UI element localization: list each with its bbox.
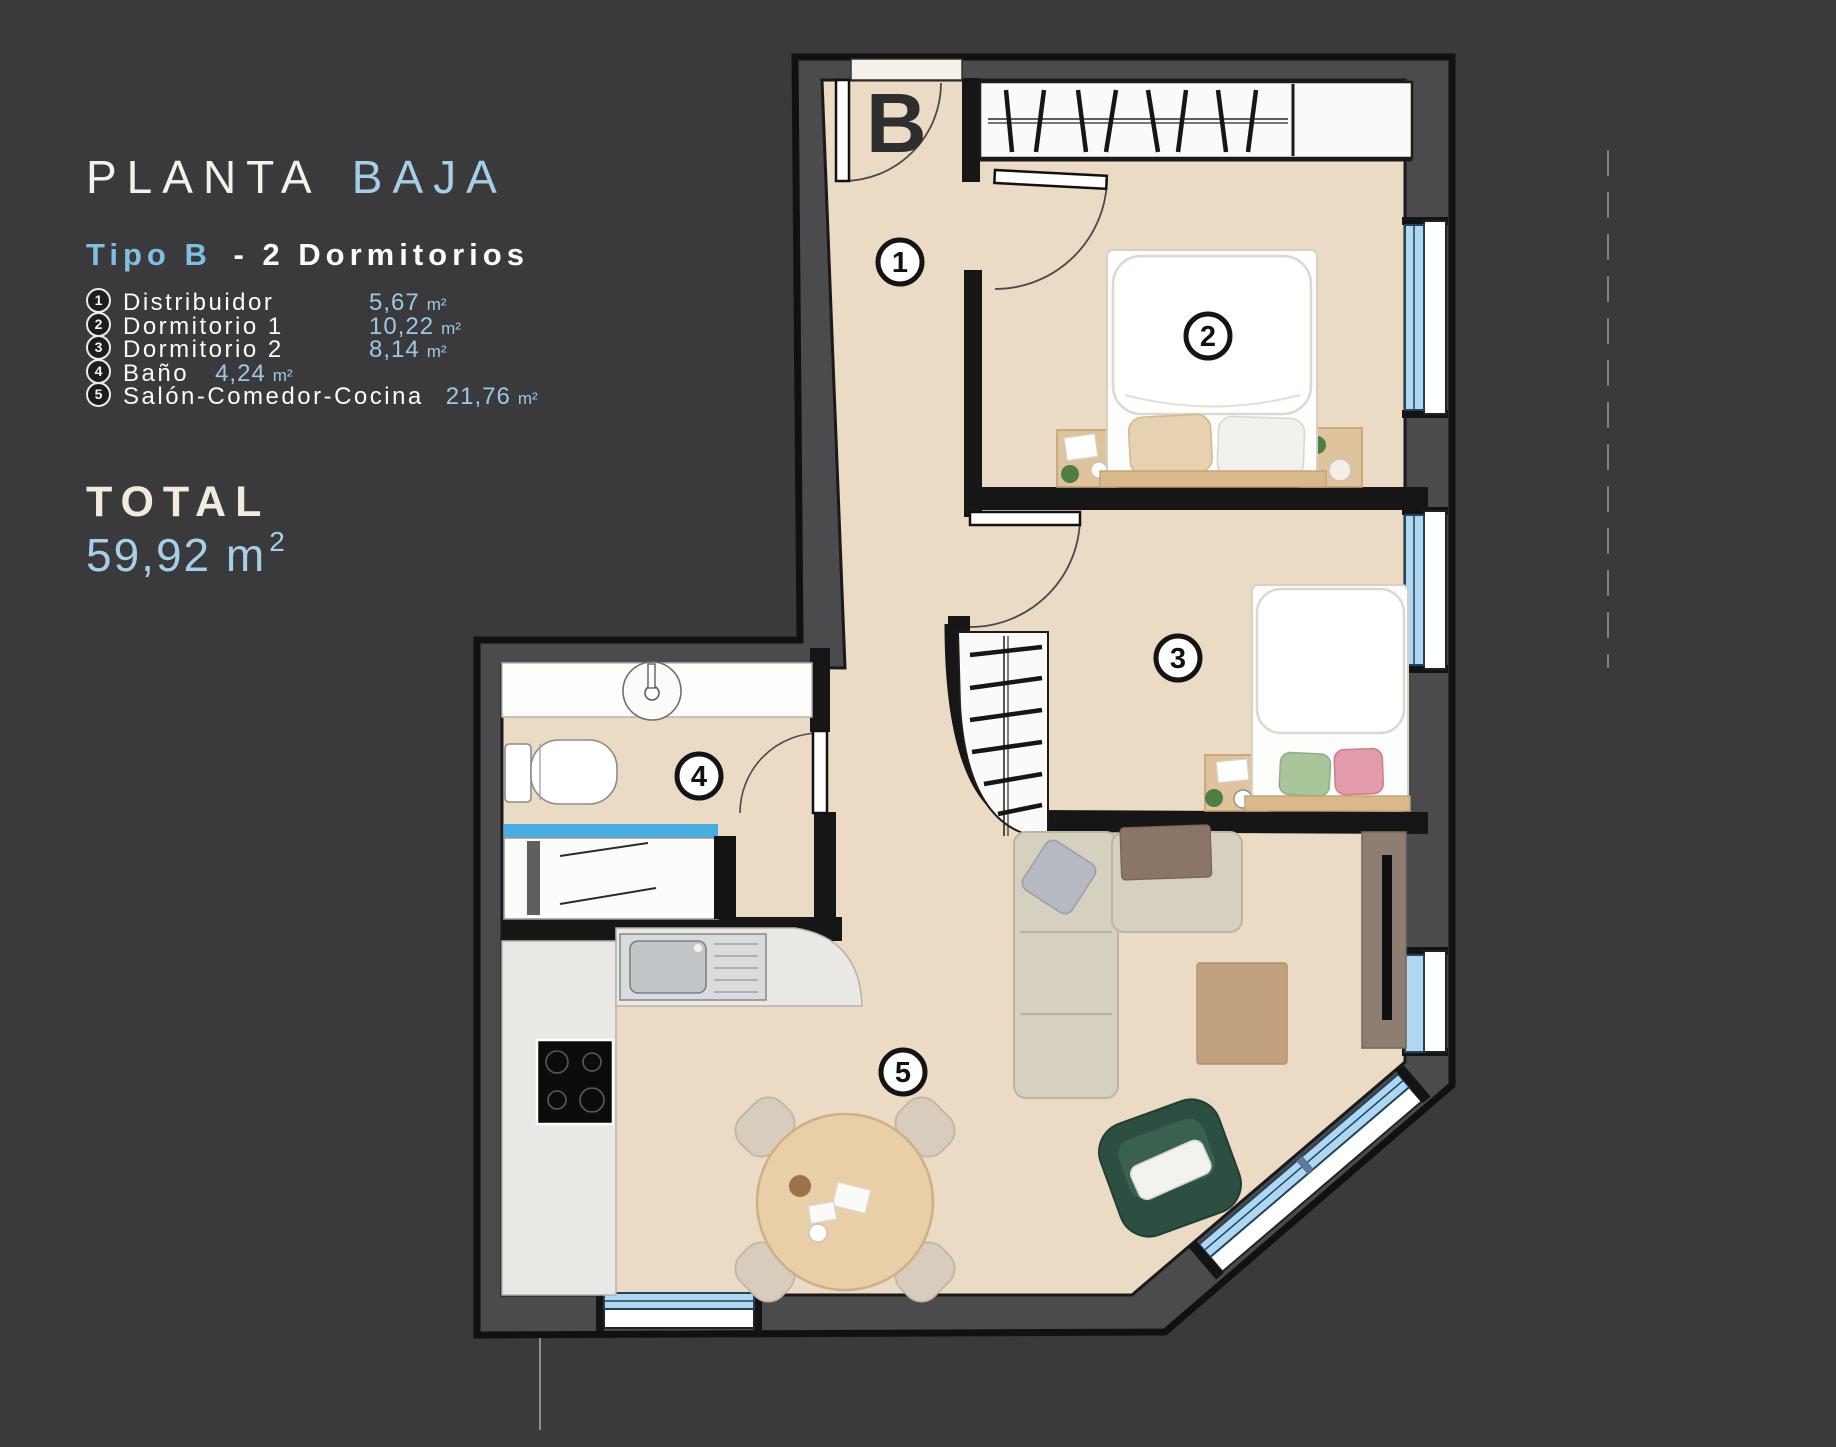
wall-bedroom2-living [1035,810,1428,834]
napkin-icon [808,1201,837,1223]
cooktop-body [537,1040,613,1124]
cooktop [537,1040,613,1124]
page: PLANTA BAJA Tipo B - 2 Dormitorios 1 Dis… [0,0,1836,1447]
tray-icon [1329,459,1351,481]
wall-closet-left [962,78,980,182]
window-glass [1405,955,1424,1052]
wall-bath-right-upper [810,648,830,732]
bed-frame [1100,471,1326,487]
bread-icon [789,1175,811,1197]
shower-panel [527,841,540,915]
window-sill [1424,221,1446,414]
bathroom-door-leaf [813,731,827,813]
bed-duvet [1257,589,1404,733]
window-sill [1424,511,1446,669]
svg-text:3: 3 [1170,643,1186,675]
toilet [505,740,617,804]
faucet-stem [648,664,655,688]
wall-hall-bedroom1 [964,270,982,517]
single-bed [1252,585,1408,809]
floor-plan: B [0,0,1836,1447]
book-icon [1064,434,1098,461]
plant-icon [1061,465,1079,483]
bed-pillow [1217,416,1305,479]
svg-text:4: 4 [691,761,707,793]
window-jamb [596,1292,604,1332]
shower-wall [714,836,736,919]
svg-text:1: 1 [892,247,908,279]
entrance-door-leaf [836,80,849,181]
bed-frame [1245,796,1410,811]
wall-bedroom1-bedroom2 [964,487,1428,510]
bed-pillow-green [1279,752,1331,797]
svg-text:5: 5 [895,1057,911,1089]
window-bottom [596,1292,762,1332]
book-icon [1216,759,1249,783]
double-bed [1100,250,1326,487]
shower-screen [504,824,718,838]
bed-pillow-pink [1334,748,1384,795]
wall-bath-right-lower [814,812,836,928]
kitchen-sink [620,934,766,1000]
toilet-bowl [531,740,617,804]
tv-icon [1382,855,1392,1020]
badge-salon: 5 [881,1050,925,1094]
badge-dormitorio2: 3 [1156,636,1200,680]
dining-table [728,1090,963,1310]
cup-icon [809,1224,827,1242]
sink-highlight [694,944,702,952]
svg-text:2: 2 [1200,321,1216,353]
plant-icon [1205,789,1223,807]
window-living-side [1402,947,1448,1056]
coffee-table [1197,963,1287,1064]
window-sill [604,1308,754,1328]
window-sill [1424,951,1446,1052]
badge-dormitorio1: 2 [1186,314,1230,358]
badge-distribuidor: 1 [878,240,922,284]
door-leaf [970,512,1080,525]
toilet-tank [505,744,531,802]
badge-bano: 4 [677,754,721,798]
bed-pillow [1128,414,1213,476]
window-bedroom1 [1402,217,1448,418]
entrance-label: B [866,76,929,170]
shower [504,824,736,919]
sofa-throw [1120,825,1212,880]
